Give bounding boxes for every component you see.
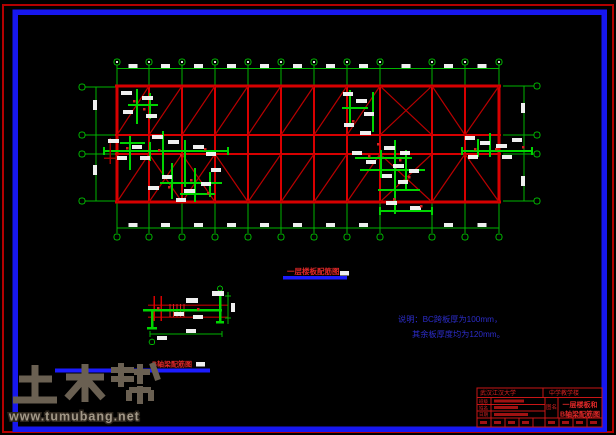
title-block-name-label: 图名 <box>546 403 557 411</box>
detail-label-blobs <box>157 291 235 340</box>
inner-border <box>15 12 604 429</box>
note-line-1: 说明：BC跨板厚为100mm， <box>398 314 502 324</box>
title-block-row-label: 班级 <box>479 398 488 405</box>
watermark-brand-glyphs <box>13 363 158 404</box>
watermark: 土木帮 www.tumubang.net <box>8 363 158 424</box>
grid-bubble-marks-top <box>116 61 500 63</box>
beam-detail-drawing <box>143 286 235 345</box>
beam-caption-text: B轴梁配筋图 <box>152 360 192 369</box>
plan-caption: 一层楼板配筋图 <box>283 266 349 280</box>
notes: 说明：BC跨板厚为100mm， 其余板厚度均为120mm。 <box>398 314 505 339</box>
grid-dimensions-bottom <box>114 202 502 240</box>
plan-caption-scale-blob <box>340 271 349 276</box>
title-block: 武汉江汉大学 中学教学楼 图名 一层楼板和 B轴梁配筋图 班级 姓名 日期 <box>477 388 602 427</box>
outer-border <box>3 5 613 432</box>
title-block-title-line1: 一层楼板和 <box>563 400 598 409</box>
title-block-project: 中学教学楼 <box>549 389 579 397</box>
title-block-school: 武汉江汉大学 <box>480 389 516 397</box>
grid-dimensions-left <box>79 84 117 204</box>
plan-caption-text: 一层楼板配筋图 <box>287 266 340 276</box>
watermark-url: www.tumubang.net <box>8 410 140 424</box>
cad-viewport: 一层楼板配筋图 B轴梁配筋图 说明：BC跨板厚为100mm， 其余板厚度均为12… <box>0 0 616 435</box>
title-block-row-label: 姓名 <box>479 404 488 411</box>
plan-caption-underline <box>283 276 347 280</box>
note-line-2: 其余板厚度均为120mm。 <box>412 329 505 339</box>
title-block-title-line2: B轴梁配筋图 <box>560 410 600 419</box>
grid-dimensions-top <box>114 59 502 86</box>
cad-canvas: 一层楼板配筋图 B轴梁配筋图 说明：BC跨板厚为100mm， 其余板厚度均为12… <box>0 0 616 435</box>
title-block-row-label: 日期 <box>479 412 488 418</box>
beam-caption-scale-blob <box>196 362 205 367</box>
